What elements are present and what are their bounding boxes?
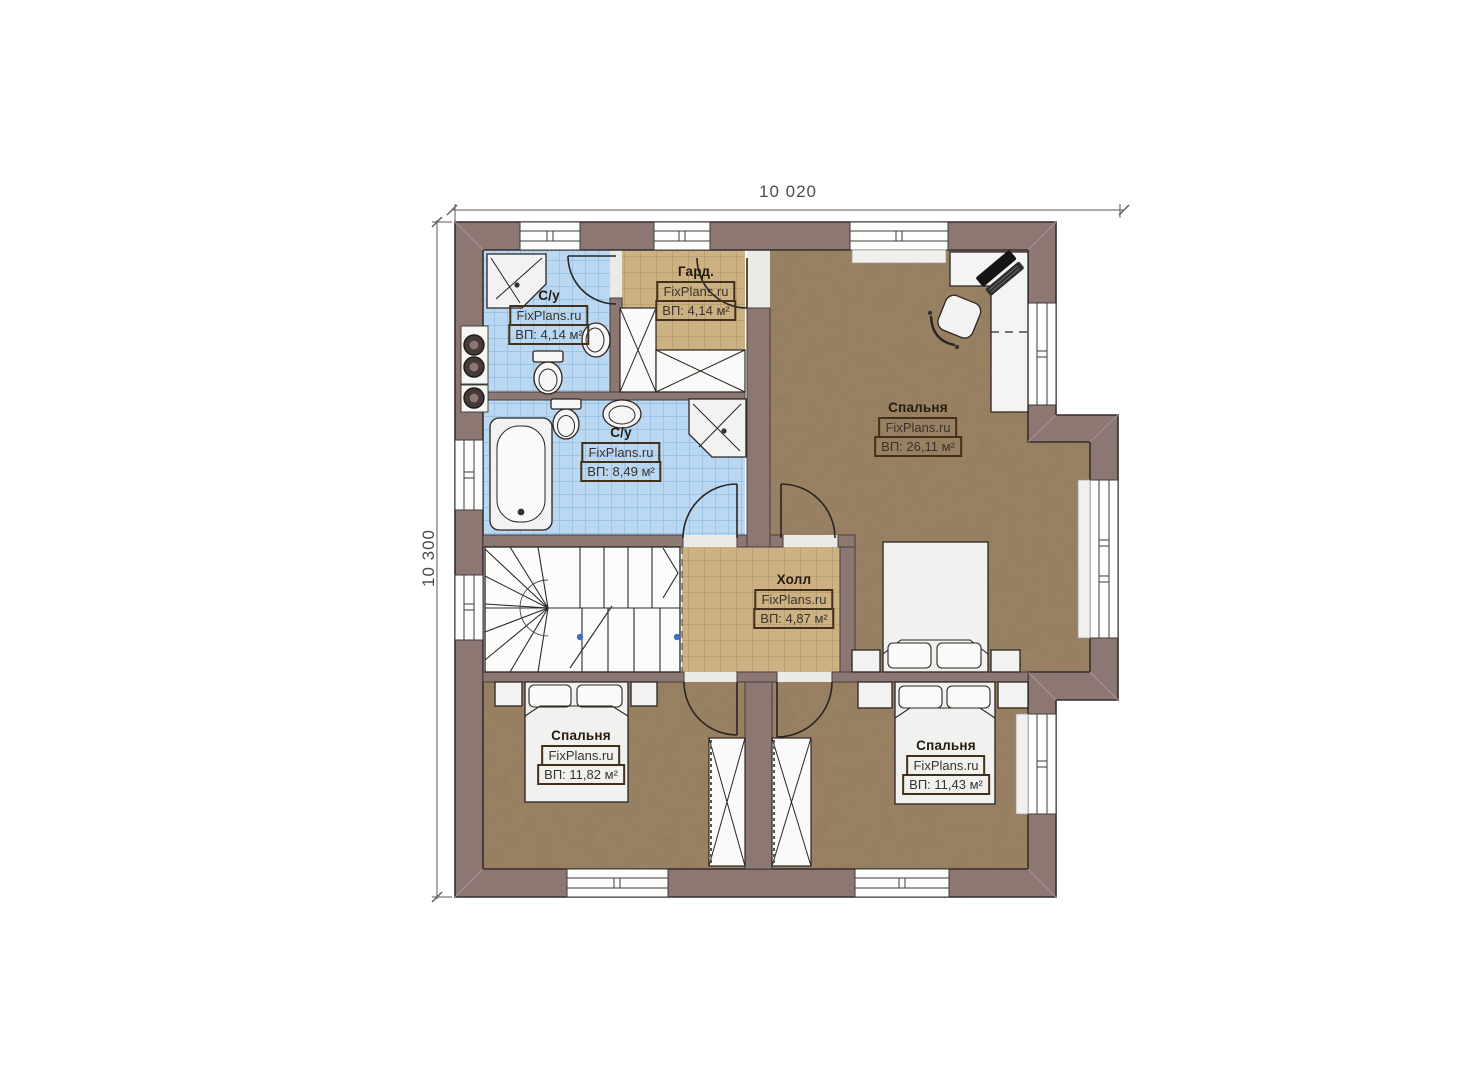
room-name: Спальня [888, 400, 948, 415]
wall-partition [747, 308, 770, 547]
area-box: ВП: 26,11 м² [874, 436, 962, 457]
toilet-icon [551, 399, 581, 439]
room-label-bedroom-master: Спальня FixPlans.ru ВП: 26,11 м² [874, 400, 962, 457]
wall-partition [737, 535, 747, 547]
area-box: ВП: 4,14 м² [655, 300, 736, 321]
wall-partition [737, 672, 777, 682]
window [567, 869, 668, 897]
room-name: Спальня [551, 728, 611, 743]
room-name: Холл [777, 572, 812, 587]
floor-plan: 10 020 10 300 С/у FixPlans.ru ВП: 4,14 м… [0, 0, 1473, 1080]
area-box: ВП: 4,87 м² [753, 608, 834, 629]
nightstand [852, 650, 880, 672]
brand-box: FixPlans.ru [541, 745, 620, 766]
area-box: ВП: 11,43 м² [902, 774, 990, 795]
window [654, 222, 710, 250]
marker-dot [674, 634, 680, 640]
threshold [683, 535, 737, 547]
nightstand [631, 682, 657, 706]
room-name: С/у [610, 425, 632, 440]
double-bed-icon [883, 542, 988, 672]
room-label-bathroom-main: С/у FixPlans.ru ВП: 8,49 м² [580, 425, 661, 482]
area-box: ВП: 11,82 м² [537, 764, 625, 785]
window [855, 869, 949, 897]
threshold [777, 672, 832, 682]
pillow [937, 643, 981, 668]
wall-partition [483, 535, 683, 547]
marker-dot [577, 634, 583, 640]
wardrobe-cabinet-icon [772, 738, 811, 866]
threshold [610, 250, 622, 298]
ventilation-pipes [461, 326, 488, 412]
sink-icon [603, 399, 641, 428]
wall-partition [483, 672, 684, 682]
window [1090, 480, 1118, 638]
threshold [684, 672, 737, 682]
window [850, 222, 948, 250]
floor-plan-drawing [0, 0, 1473, 1080]
brand-box: FixPlans.ru [878, 417, 957, 438]
dimension-width-label: 10 020 [759, 182, 817, 202]
pillow [899, 686, 942, 708]
bathtub-icon [490, 418, 552, 530]
pillow [888, 643, 931, 668]
window-sill [1078, 480, 1090, 638]
wardrobe-cabinet-icon [709, 738, 745, 866]
brand-box: FixPlans.ru [754, 589, 833, 610]
brand-box: FixPlans.ru [581, 442, 660, 463]
nightstand [495, 682, 522, 706]
wardrobe-cabinet-icon [656, 350, 745, 392]
window [455, 575, 483, 640]
nightstand [858, 682, 892, 708]
room-label-bathroom-top: С/у FixPlans.ru ВП: 4,14 м² [508, 288, 589, 345]
brand-box: FixPlans.ru [906, 755, 985, 776]
room-label-bedroom-left: Спальня FixPlans.ru ВП: 11,82 м² [537, 728, 625, 785]
window [455, 440, 483, 510]
brand-box: FixPlans.ru [656, 281, 735, 302]
window-sill [1016, 714, 1028, 814]
dimension-height-label: 10 300 [419, 529, 439, 587]
room-label-hall: Холл FixPlans.ru ВП: 4,87 м² [753, 572, 834, 629]
window [520, 222, 580, 250]
pillow [577, 685, 622, 707]
window-sill [852, 250, 946, 263]
room-name: С/у [538, 288, 560, 303]
area-box: ВП: 8,49 м² [580, 461, 661, 482]
pillow [947, 686, 990, 708]
room-label-bedroom-right: Спальня FixPlans.ru ВП: 11,43 м² [902, 738, 990, 795]
room-label-wardrobe: Гард. FixPlans.ru ВП: 4,14 м² [655, 264, 736, 321]
dimension-line-top [447, 204, 1129, 222]
brand-box: FixPlans.ru [509, 305, 588, 326]
wall-partition [745, 682, 772, 869]
area-box: ВП: 4,14 м² [508, 324, 589, 345]
nightstand [991, 650, 1020, 672]
toilet-icon [533, 351, 563, 394]
wall-partition [838, 535, 855, 547]
room-name: Спальня [916, 738, 976, 753]
window [1028, 714, 1056, 814]
nightstand [998, 682, 1028, 708]
window [1028, 303, 1056, 405]
room-name: Гард. [678, 264, 714, 279]
wardrobe-cabinet-icon [620, 308, 656, 392]
threshold [747, 250, 770, 308]
threshold [783, 535, 838, 547]
wall-partition [832, 672, 1028, 682]
pillow [529, 685, 571, 707]
